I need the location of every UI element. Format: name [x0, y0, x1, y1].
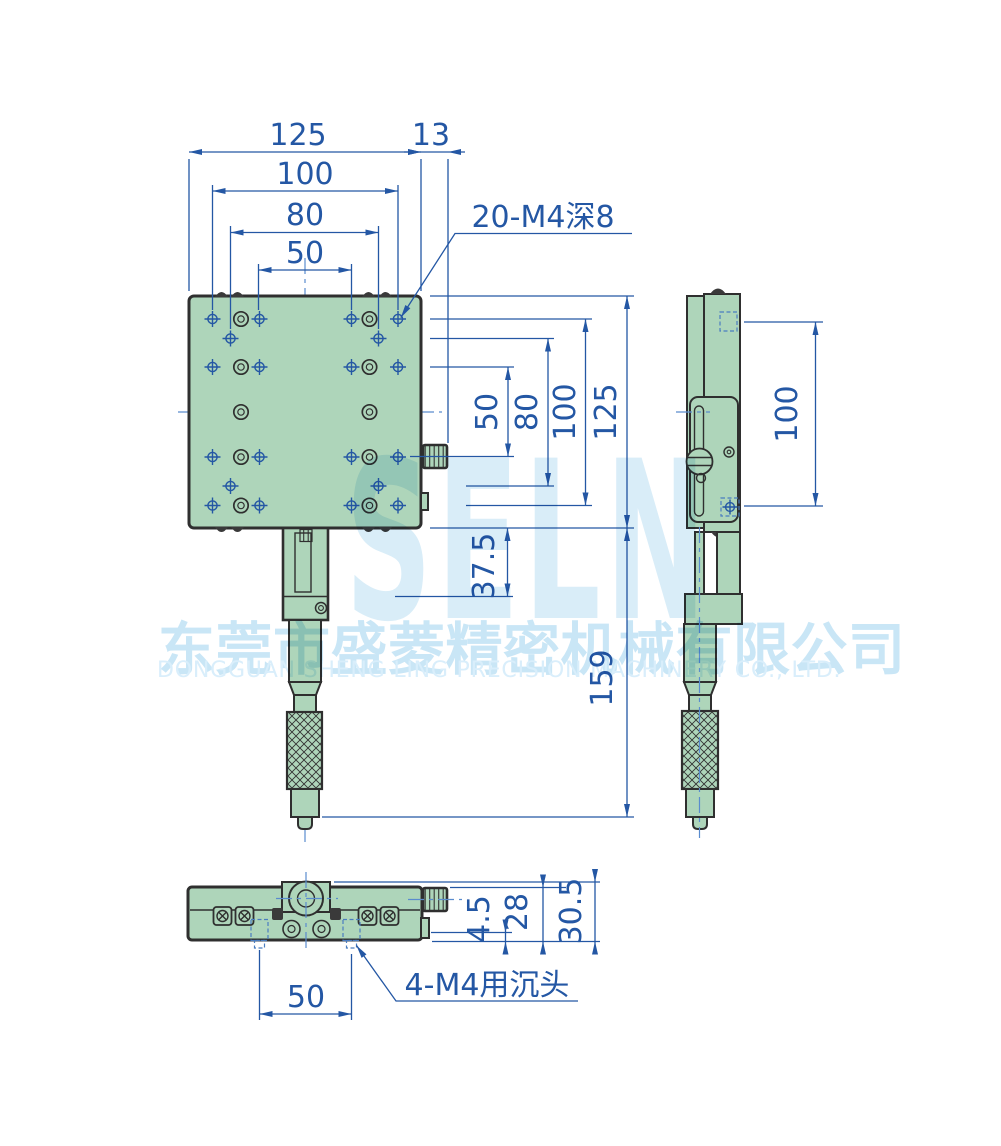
micrometer-side: [682, 532, 742, 829]
dim-side-100-label: 100: [770, 385, 805, 442]
dim-top-width-label: 125: [269, 118, 326, 153]
callout-threaded-holes-label: 20-M4深8: [471, 200, 614, 235]
dim-bottom-4-5-label: 4.5: [462, 895, 497, 943]
dim-right-80-label: 80: [510, 393, 545, 431]
knurled-grip-front: [287, 712, 322, 789]
dim-top-80-label: 80: [286, 198, 324, 233]
dim-right-50-label: 50: [470, 393, 505, 431]
dim-bottom-30-5-label: 30.5: [554, 878, 589, 945]
side-thumbscrew: [687, 449, 713, 475]
dim-bottom-50-label: 50: [287, 980, 325, 1015]
side-tab-front: [421, 493, 428, 510]
dim-top-100-label: 100: [276, 157, 333, 192]
dim-right-100-label: 100: [548, 383, 583, 440]
dim-right-37-5-label: 37.5: [467, 533, 502, 600]
callout-counterbore-label: 4-M4用沉头: [405, 968, 570, 1003]
dim-right-125-label: 125: [589, 383, 624, 440]
dim-knob-protrusion-label: 13: [412, 118, 450, 153]
side-view: 100: [676, 289, 823, 839]
side-tab-bottom: [421, 918, 429, 938]
stage-top-plate: [189, 296, 421, 528]
front-view: [178, 258, 447, 842]
dim-top-50-label: 50: [286, 236, 324, 271]
bottom-view: 4.5 28 30.5 50 4-M4用沉头: [188, 870, 600, 1020]
spindle-tip-front: [298, 817, 312, 829]
stage-drawing: 125 13 100 80 50 20-M4深8 50 80 100: [0, 0, 1001, 1146]
dim-bottom-28-label: 28: [500, 893, 535, 931]
side-top-screw-bump: [710, 289, 726, 295]
technical-drawing-page: 125 13 100 80 50 20-M4深8 50 80 100: [0, 0, 1001, 1146]
micrometer-front: [283, 528, 328, 829]
dim-right-159-label: 159: [585, 649, 620, 706]
